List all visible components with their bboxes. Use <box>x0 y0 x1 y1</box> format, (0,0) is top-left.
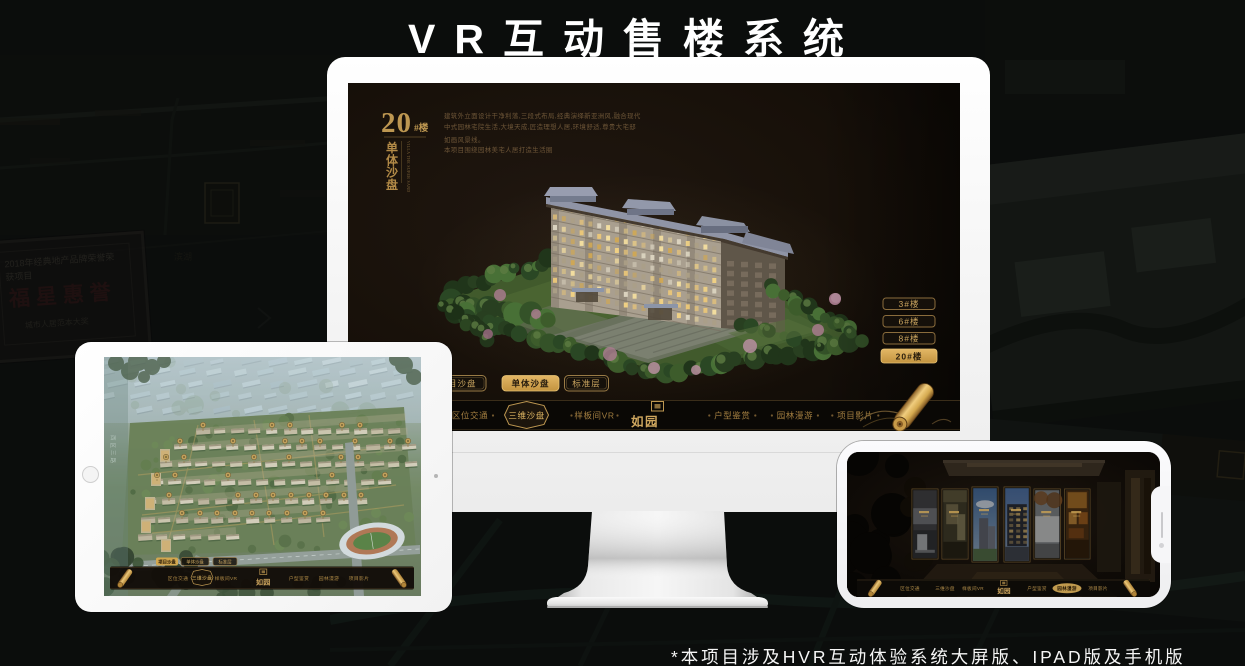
svg-text:8#楼: 8#楼 <box>899 333 920 343</box>
svg-text:园林漫游: 园林漫游 <box>1057 585 1077 592</box>
svg-text:样板间VR: 样板间VR <box>574 411 614 421</box>
svg-text:三维沙盘: 三维沙盘 <box>935 585 955 592</box>
svg-text:建筑外立面设计干净利落,三段式布局,经典演绎新亚洲风,融合现: 建筑外立面设计干净利落,三段式布局,经典演绎新亚洲风,融合现代 <box>444 111 641 120</box>
svg-text:6#楼: 6#楼 <box>899 316 920 326</box>
svg-text:中式园林宅院生活,大境天成,匠造理想人居,环境舒适,尊贵大宅: 中式园林宅院生活,大境天成,匠造理想人居,环境舒适,尊贵大宅邸 <box>444 122 636 131</box>
svg-text:户型鉴赏: 户型鉴赏 <box>714 411 750 421</box>
svg-text:样板间VR: 样板间VR <box>962 585 984 592</box>
svg-text:三维沙盘: 三维沙盘 <box>192 575 212 582</box>
svg-text:园林漫游: 园林漫游 <box>319 575 339 582</box>
svg-text:园林漫游: 园林漫游 <box>777 411 813 421</box>
svg-text:盘: 盘 <box>386 177 398 192</box>
svg-text:如园: 如园 <box>631 414 659 429</box>
svg-text:如园: 如园 <box>997 586 1011 595</box>
svg-text:项目影片: 项目影片 <box>349 575 369 582</box>
svg-text:本项目围绕园林美宅人居打造生活圈: 本项目围绕园林美宅人居打造生活圈 <box>444 145 553 154</box>
svg-text:三维沙盘: 三维沙盘 <box>508 411 544 421</box>
svg-text:20: 20 <box>381 107 412 139</box>
svg-text:滨湖: 滨湖 <box>174 251 192 262</box>
svg-text:户型鉴赏: 户型鉴赏 <box>289 575 309 582</box>
svg-text:区位交通: 区位交通 <box>452 411 488 421</box>
svg-text:区位交通: 区位交通 <box>168 575 188 582</box>
svg-text:项目影片: 项目影片 <box>1088 585 1108 592</box>
svg-text:样板间VR: 样板间VR <box>215 575 238 582</box>
svg-text:VILLA THE SUPER SAND: VILLA THE SUPER SAND <box>406 141 410 193</box>
svg-text:项目沙盘: 项目沙盘 <box>158 558 176 565</box>
svg-text:3#楼: 3#楼 <box>899 299 920 309</box>
svg-text:如画风景线。: 如画风景线。 <box>444 135 485 144</box>
svg-text:户型鉴赏: 户型鉴赏 <box>1027 585 1047 592</box>
svg-text:单体沙盘: 单体沙盘 <box>511 379 549 389</box>
svg-text:如园: 如园 <box>256 578 271 587</box>
svg-text:单体沙盘: 单体沙盘 <box>186 558 204 565</box>
svg-text:标准层: 标准层 <box>218 558 232 565</box>
svg-text:区位交通: 区位交通 <box>900 585 920 592</box>
svg-text:20#楼: 20#楼 <box>896 352 923 362</box>
svg-text:#楼: #楼 <box>414 122 429 134</box>
svg-text:标准层: 标准层 <box>572 379 601 389</box>
